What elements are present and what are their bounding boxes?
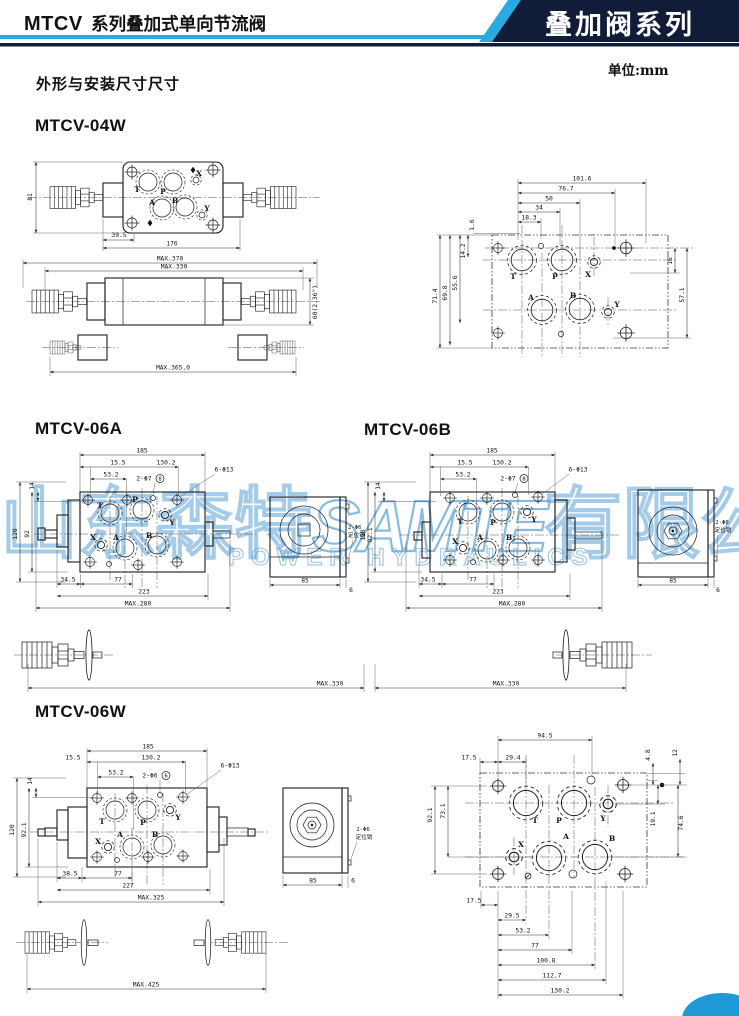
m06w-end-view: 2-Φ6 定位销 85 6 <box>283 788 373 888</box>
dim-max280: MAX.280 <box>125 601 152 608</box>
dim-92: 92 <box>24 530 31 538</box>
dim-94-5: 94.5 <box>537 733 552 740</box>
dim-15-5: 15.5 <box>110 460 125 467</box>
dim-120: 120 <box>360 529 367 541</box>
dim-85: 85 <box>309 878 317 885</box>
dim-34-5: 34.5 <box>420 577 435 584</box>
dim-16: 16 <box>667 257 674 265</box>
dim-130-2: 130.2 <box>551 988 570 995</box>
dim-185: 185 <box>486 448 498 455</box>
m06a-face-view: T P Y X A B 185 15.5 130.2 53.2 2-Φ7 8 6… <box>12 448 256 613</box>
mtcv-06a-drawing: T P Y X A B 185 15.5 130.2 53.2 2-Φ7 8 6… <box>8 438 368 693</box>
port-label-p: P <box>556 816 562 825</box>
dim-53-2: 53.2 <box>108 770 123 777</box>
dim-85: 85 <box>669 578 677 585</box>
dim-77: 77 <box>114 577 122 584</box>
dim-39-5: 39.5 <box>111 232 126 239</box>
dim-77: 77 <box>469 577 477 584</box>
dim-14: 14 <box>375 482 382 490</box>
port-label-p: P <box>140 818 146 827</box>
pin-callout-1: 2-Φ6 <box>356 827 369 833</box>
dim-55-6: 55.6 <box>452 275 459 290</box>
port-label-x: X <box>196 169 202 178</box>
callout-6: 6 <box>164 774 167 780</box>
dim-max325: MAX.325 <box>138 895 165 902</box>
dim-69-8: 69.8 <box>442 285 449 300</box>
dim-34-5: 34.5 <box>60 577 75 584</box>
dim-130-2: 130.2 <box>142 755 161 762</box>
pin-callout-1: 2-Φ6 <box>715 520 728 526</box>
dim-15-5: 15.5 <box>65 755 80 762</box>
port-label-x: X <box>518 840 524 849</box>
dim-max365: MAX.365.0 <box>156 365 190 372</box>
dim-100-8: 100.8 <box>537 958 556 965</box>
port-label-b: B <box>570 291 576 300</box>
m06w-face-view: T P Y X A B 185 15.5 130.2 53.2 2-Φ6 6 6… <box>9 744 270 907</box>
mtcv-04w-face-drawing: T P X A B Y 101.6 76.7 50 34 18.3 1. <box>425 165 730 380</box>
port-label-x: X <box>90 533 96 542</box>
port-label-a: A <box>562 832 569 841</box>
port-label-t: T <box>510 272 516 281</box>
unit-label: 单位:mm <box>608 59 669 79</box>
dim-max370: MAX.370 <box>157 256 184 263</box>
m04w-face: T P X A B Y 101.6 76.7 50 34 18.3 1. <box>432 176 693 358</box>
callout-2phi7: 2-Φ7 <box>500 476 515 483</box>
dim-77: 77 <box>531 943 539 950</box>
dim-81: 81 <box>27 193 34 201</box>
port-label-t: T <box>134 185 140 194</box>
dim-max330: MAX.330 <box>161 264 188 271</box>
port-label-a: A <box>112 533 119 542</box>
dim-77: 77 <box>114 871 122 878</box>
dim-112-7: 112.7 <box>543 973 562 980</box>
callout-2phi7: 2-Φ7 <box>136 476 151 483</box>
dim-34: 34 <box>535 205 543 212</box>
mtcv-06w-face-drawing: T P Y X A B 94.5 17.5 29.4 4.8 12 <box>425 715 739 1016</box>
dim-130-2: 130.2 <box>493 460 512 467</box>
callout-6phi13: 6-Φ13 <box>221 763 240 770</box>
port-label-p: P <box>160 187 166 196</box>
dim-17-5-top: 17.5 <box>461 755 476 762</box>
dim-15-5: 15.5 <box>457 460 472 467</box>
section-subtitle: 外形与安装尺寸尺寸 <box>36 73 180 94</box>
mtcv-06w-drawing: T P Y X A B 185 15.5 130.2 53.2 2-Φ6 6 6… <box>8 705 378 1016</box>
dim-73-1: 73.1 <box>440 803 447 818</box>
catalog-page: MTCV 系列叠加式单向节流阀 叠加阀系列 单位:mm 外形与安装尺寸尺寸 山东… <box>0 0 739 1016</box>
dim-6: 6 <box>349 587 353 594</box>
m04w-side-view: MAX.370 MAX.330 60(2.36") <box>23 256 322 326</box>
dim-12: 12 <box>672 749 679 757</box>
dim-18-3: 18.3 <box>521 215 536 222</box>
port-label-p: P <box>490 518 496 527</box>
dim-6: 6 <box>351 878 355 885</box>
dim-50: 50 <box>545 196 553 203</box>
dim-176: 176 <box>166 241 178 248</box>
pin-callout-2: 定位销 <box>356 833 373 841</box>
dim-14-2: 14.2 <box>460 243 467 258</box>
port-label-b: B <box>146 531 152 540</box>
mtcv-06b-drawing: T P Y X A B 185 15.5 130.2 53.2 2-Φ7 8 6… <box>360 438 739 693</box>
m06b-knob-view: MAX.330 <box>375 630 652 692</box>
dim-max425: MAX.425 <box>133 982 160 989</box>
dim-53-2: 53.2 <box>103 472 118 479</box>
mtcv-04w-views-drawing: T P A B X Y 81 39.5 176 <box>20 145 350 385</box>
dim-1-6: 1.6 <box>469 219 476 231</box>
page-title: MTCV 系列叠加式单向节流阀 <box>24 11 266 36</box>
dim-101-6: 101.6 <box>573 176 592 183</box>
port-label-a: A <box>148 198 155 207</box>
m06b-face-view: T P Y X A B 185 15.5 130.2 53.2 2-Φ7 8 6… <box>360 448 620 613</box>
dim-max330: MAX.330 <box>317 681 344 688</box>
port-label-t: T <box>532 816 538 825</box>
dim-53-2: 53.2 <box>515 928 530 935</box>
dim-57-1: 57.1 <box>679 287 686 302</box>
title-mtcv-06b: MTCV-06B <box>364 420 451 440</box>
port-label-p: P <box>552 272 558 281</box>
title-mtcv-06w: MTCV-06W <box>35 702 126 722</box>
port-label-y: Y <box>530 515 537 524</box>
port-label-b: B <box>506 533 512 542</box>
dim-6: 6 <box>716 587 720 594</box>
port-label-a: A <box>476 533 483 542</box>
dim-71-4: 71.4 <box>432 288 439 303</box>
port-label-y: Y <box>599 814 606 823</box>
dim-74-6: 74.6 <box>678 815 685 830</box>
dim-85: 85 <box>301 578 309 585</box>
model-description: 系列叠加式单向节流阀 <box>91 15 266 35</box>
pin-callout-2: 定位销 <box>715 526 732 534</box>
port-label-a: A <box>527 293 534 302</box>
port-label-y: Y <box>613 300 620 309</box>
port-label-t: T <box>99 817 105 826</box>
model-name: MTCV <box>24 13 83 35</box>
header-navy-rule <box>0 43 739 47</box>
port-label-p: P <box>132 495 138 504</box>
title-mtcv-06a: MTCV-06A <box>35 419 122 439</box>
dim-76-7: 76.7 <box>558 186 573 193</box>
m04w-top-view: T P A B X Y 81 39.5 176 <box>27 162 320 251</box>
port-label-y: Y <box>203 204 210 213</box>
port-label-x: X <box>452 537 458 546</box>
port-label-t: T <box>457 517 463 526</box>
port-label-y: Y <box>168 518 175 527</box>
dim-4-8: 4.8 <box>645 749 652 761</box>
dim-29-5: 29.5 <box>504 913 519 920</box>
m06w-knobs-view: MAX.425 <box>16 920 288 993</box>
dim-max280: MAX.280 <box>499 601 526 608</box>
dim-92-1: 92.1 <box>427 807 434 822</box>
dim-92-1: 92.1 <box>21 822 28 837</box>
dim-60: 60(2.36") <box>312 285 319 319</box>
port-label-a: A <box>116 830 123 839</box>
dim-120: 120 <box>9 824 16 836</box>
dim-130-2: 130.2 <box>157 460 176 467</box>
title-mtcv-04w: MTCV-04W <box>35 116 126 136</box>
port-label-x: X <box>95 837 101 846</box>
port-label-b: B <box>152 830 158 839</box>
dim-19-1: 19.1 <box>650 811 657 826</box>
port-label-t: T <box>97 501 103 510</box>
dim-185: 185 <box>136 448 148 455</box>
dim-223: 223 <box>492 589 504 596</box>
dim-38-5: 38.5 <box>62 871 77 878</box>
callout-2phi6: 2-Φ6 <box>142 773 157 780</box>
dim-29-4: 29.4 <box>505 755 520 762</box>
callout-6phi13: 6-Φ13 <box>569 467 588 474</box>
m06w-face: T P Y X A B 94.5 17.5 29.4 4.8 12 <box>427 733 687 1000</box>
m06a-knob-view: MAX.330 <box>14 630 364 692</box>
dim-max330: MAX.330 <box>493 681 520 688</box>
dim-120: 120 <box>12 528 19 540</box>
series-banner: 叠加阀系列 <box>508 3 732 42</box>
port-label-b: B <box>172 196 178 205</box>
dim-53-2: 53.2 <box>455 472 470 479</box>
callout-6phi13: 6-Φ13 <box>215 467 234 474</box>
m06a-end-view: 2-Φ6 定位销 85 6 <box>270 497 365 594</box>
port-label-y: Y <box>174 813 181 822</box>
dim-223: 223 <box>138 589 150 596</box>
port-label-x: X <box>585 270 591 279</box>
dim-17-5-bottom: 17.5 <box>466 898 481 905</box>
m06b-end-view: 2-Φ6 定位销 85 6 <box>638 490 732 594</box>
dim-227: 227 <box>122 883 134 890</box>
port-label-b: B <box>609 834 615 843</box>
dim-185: 185 <box>142 744 154 751</box>
m04w-bottom-view: MAX.365.0 <box>42 335 304 376</box>
dim-14: 14 <box>29 482 36 490</box>
